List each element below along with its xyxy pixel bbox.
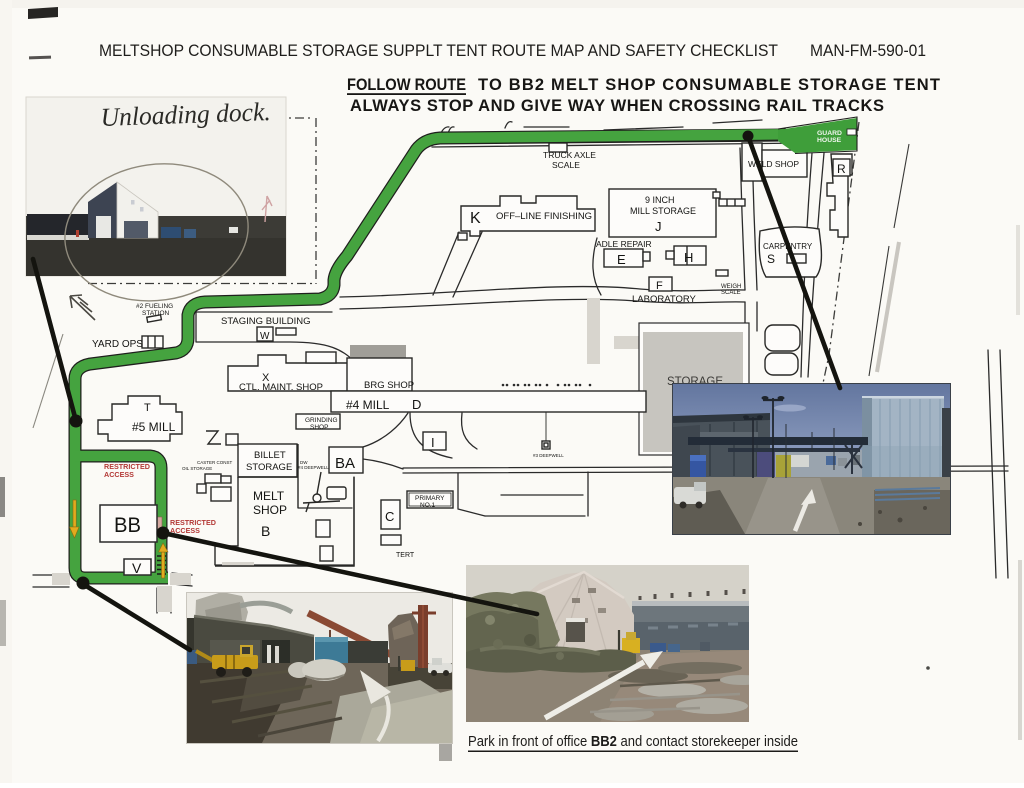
svg-text:ACCESS: ACCESS [104, 470, 134, 479]
svg-text:C: C [385, 509, 394, 524]
svg-text:SHOP: SHOP [253, 503, 287, 517]
svg-text:9 INCH: 9 INCH [645, 195, 675, 205]
svg-text:F: F [656, 280, 663, 292]
svg-text:PRIMARY: PRIMARY [415, 495, 445, 502]
svg-text:V: V [132, 560, 142, 576]
svg-text:#2 FUELING: #2 FUELING [136, 303, 173, 310]
svg-text:CASTER CONST: CASTER CONST [197, 460, 233, 465]
svg-text:B: B [261, 523, 270, 539]
svg-text:T: T [144, 402, 151, 414]
svg-text:BB: BB [114, 514, 141, 537]
svg-text:Unloading dock.: Unloading dock. [100, 97, 271, 132]
svg-text:OFF–LINE FINISHING: OFF–LINE FINISHING [496, 211, 592, 222]
svg-text:#5 MILL: #5 MILL [132, 420, 176, 434]
svg-text:D: D [412, 397, 421, 412]
svg-text:H: H [684, 250, 693, 265]
svg-text:ALWAYS STOP AND GIVE WAY WHEN: ALWAYS STOP AND GIVE WAY WHEN CROSSING R… [350, 97, 884, 115]
svg-text:BA: BA [335, 455, 355, 472]
svg-text:YARD OPS: YARD OPS [92, 339, 143, 350]
svg-text:BILLET: BILLET [254, 450, 286, 461]
svg-text:E: E [617, 252, 626, 267]
svg-text:TRUCK AXLE: TRUCK AXLE [543, 150, 596, 160]
svg-text:Park in front of office BB2 an: Park in front of office BB2 and contact … [468, 733, 798, 750]
svg-text:ADLE REPAIR: ADLE REPAIR [596, 239, 652, 249]
svg-text:K: K [470, 210, 481, 227]
svg-text:HOUSE: HOUSE [817, 137, 842, 144]
svg-text:S: S [767, 252, 775, 266]
svg-text:SHOP: SHOP [310, 424, 328, 431]
svg-text:CTL. MAINT. SHOP: CTL. MAINT. SHOP [239, 382, 323, 393]
svg-text:BRG SHOP: BRG SHOP [364, 380, 414, 391]
svg-text:W: W [260, 331, 270, 342]
svg-text:GUARD: GUARD [817, 130, 842, 137]
svg-text:J: J [655, 219, 662, 234]
svg-text:GRINDING: GRINDING [305, 417, 338, 424]
svg-text:NO.1: NO.1 [420, 502, 436, 509]
svg-text:R: R [837, 162, 846, 176]
svg-text:MILL STORAGE: MILL STORAGE [630, 206, 696, 216]
svg-text:STAGING BUILDING: STAGING BUILDING [221, 316, 311, 327]
svg-text:TERT: TERT [396, 552, 415, 559]
svg-text:OIL STORAGE: OIL STORAGE [182, 466, 212, 471]
svg-text:STATION: STATION [142, 310, 170, 317]
svg-text:#3 DEEPWELL: #3 DEEPWELL [533, 453, 564, 458]
svg-text:#4 DEEPWELL: #4 DEEPWELL [298, 465, 329, 470]
svg-text:LABORATORY: LABORATORY [632, 294, 697, 305]
svg-text:#4 MILL: #4 MILL [346, 398, 390, 412]
svg-text:TO BB2 MELT SHOP CONSUMABLE ST: TO BB2 MELT SHOP CONSUMABLE STORAGE TENT [478, 76, 940, 94]
svg-text:SCALE: SCALE [721, 290, 741, 296]
svg-text:FOLLOW ROUTE: FOLLOW ROUTE [347, 76, 466, 94]
svg-text:SCALE: SCALE [552, 160, 580, 170]
svg-text:MELTSHOP CONSUMABLE STORAGE SU: MELTSHOP CONSUMABLE STORAGE SUPPLT TENT … [99, 41, 778, 60]
svg-text:I: I [431, 435, 435, 450]
svg-text:STORAGE: STORAGE [246, 462, 292, 473]
svg-text:MAN-FM-590-01: MAN-FM-590-01 [810, 41, 926, 60]
svg-text:MELT: MELT [253, 489, 285, 503]
